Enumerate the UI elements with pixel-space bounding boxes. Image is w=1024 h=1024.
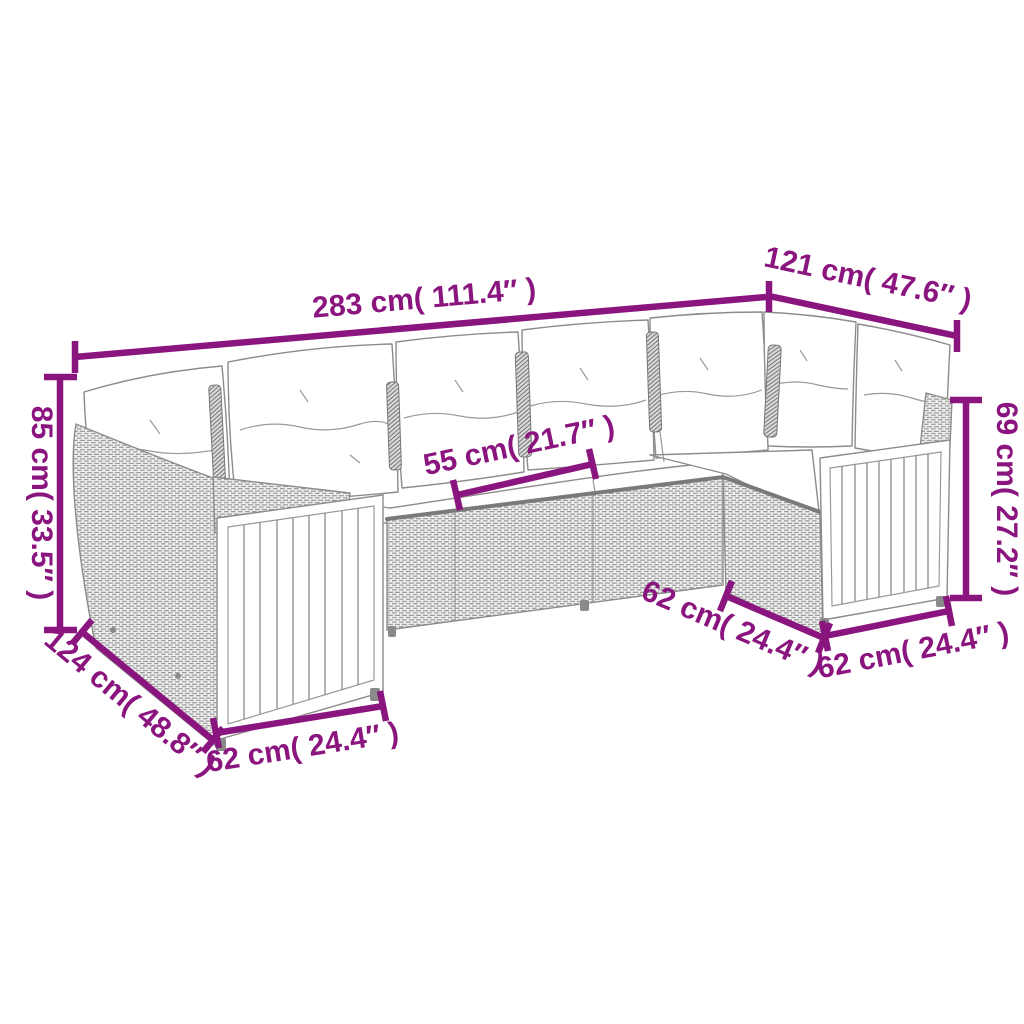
dimension-back-height: 85 cm( 33.5″ ) [25,377,77,630]
dimension-label-front-right-width: 62 cm( 24.4″ ) [815,616,1012,686]
dimension-label-right-back-width: 121 cm( 47.6″ ) [761,241,974,317]
dimension-right-arm-height: 69 cm( 27.2″ ) [950,400,1023,598]
cushion-back-2 [228,344,398,502]
dimension-diagram-page: 283 cm( 111.4″ ) 121 cm( 47.6″ ) 85 cm( … [0,0,1024,1024]
dimension-label-right-arm-height: 69 cm( 27.2″ ) [990,402,1023,596]
dimension-label-back-height: 85 cm( 33.5″ ) [25,406,58,600]
cushion-back-5 [650,312,768,458]
sofa-dimension-diagram: 283 cm( 111.4″ ) 121 cm( 47.6″ ) 85 cm( … [0,0,1024,1024]
